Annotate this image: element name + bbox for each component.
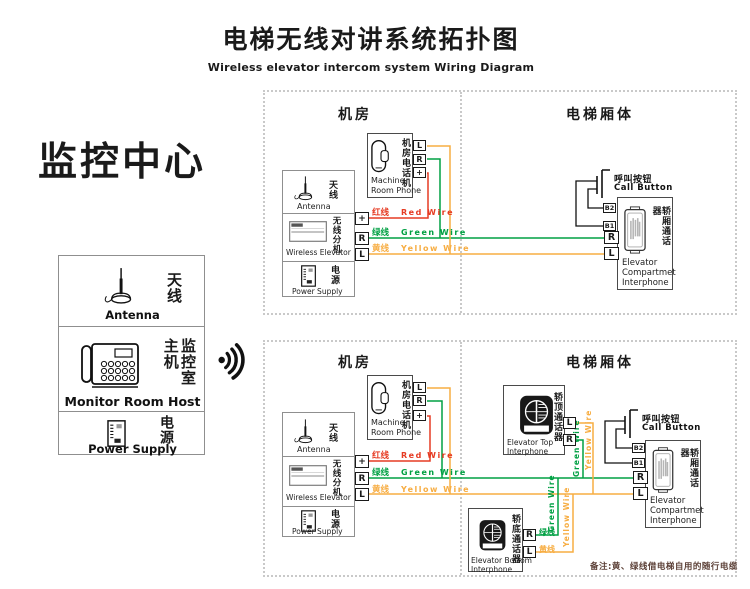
wire-label-green: 绿线Green Wire [372, 226, 467, 238]
divider-line [59, 411, 204, 412]
vertical-label-yellow-wire: Yellow Wire [584, 410, 593, 470]
terminal-l: L [355, 488, 369, 501]
wire-label-red: 红线Red Wire [372, 449, 454, 461]
speaker-icon [519, 395, 554, 437]
wiring-diagram-page: 电梯无线对讲系统拓扑图 Wireless elevator intercom s… [0, 0, 750, 589]
unit-label-en: Wireless Elevator [286, 249, 351, 258]
terminal-r: R [633, 471, 648, 484]
terminal-l: L [413, 140, 426, 151]
top-interphone-label-en: Interphone [507, 448, 548, 457]
machine-room-phone-box: 机房电话机 Machine Room Phone [367, 375, 413, 440]
call-button-label-en: Call Button [642, 423, 701, 433]
intercom-panel-icon [624, 205, 646, 255]
sound-waves-icon [216, 338, 254, 382]
power-supply-icon [301, 265, 316, 287]
wireless-unit-icon [289, 221, 327, 242]
machine-room-phone-label-en: Machine [371, 418, 405, 427]
call-button-symbol [625, 410, 638, 438]
wire-label-green-en: Green Wire [401, 228, 467, 237]
divider-line [59, 326, 204, 327]
wire-label-red-en: Red Wire [401, 208, 454, 217]
unit-power-label-en: Power Supply [292, 288, 343, 297]
terminal-r: R [413, 395, 426, 406]
wire-label-red-en: Red Wire [401, 451, 454, 460]
terminal-l: L [563, 417, 576, 429]
divider-line [283, 456, 354, 457]
monitor-center-box: 天线 Antenna 监控室主机 Monitor Room Host 电源 Po… [58, 255, 205, 455]
vertical-label-green-wire: Green Wire [547, 474, 556, 532]
elevator-top-interphone-box: 轿顶通话器 Elevator Top Interphone [503, 385, 565, 455]
unit-antenna-label-zh: 天线 [327, 180, 336, 202]
call-button-wire [576, 181, 603, 226]
terminal-r: R [413, 154, 426, 165]
wireless-unit-box: 天线 Antenna 无线分机 Wireless Elevator 电源 Pow… [282, 412, 355, 537]
terminal-plus: + [413, 410, 426, 421]
unit-antenna-label-en: Antenna [297, 202, 331, 211]
wire-label-red-zh: 红线 [372, 451, 389, 461]
top-interphone-label-zh: 轿顶通话器 [552, 392, 561, 442]
terminal-r: R [604, 231, 619, 244]
elevator-bottom-interphone-box: 轿底通话器 Elevator Bottom Interphone [468, 508, 523, 572]
bottom-interphone-label-en: Interphone [471, 566, 512, 575]
terminal-r: R [355, 232, 369, 245]
divider-line [283, 506, 354, 507]
unit-power-label-en: Power Supply [292, 528, 343, 537]
unit-antenna-label-en: Antenna [297, 445, 331, 454]
wall-phone-icon [371, 139, 391, 175]
call-button-wire [588, 189, 603, 208]
terminal-r: R [355, 472, 369, 485]
yellow-wire-short-label: 黄线 [539, 544, 555, 555]
speaker-icon [479, 517, 506, 555]
wire-label-yellow: 黄线Yellow Wire [372, 483, 470, 495]
vertical-label-yellow-wire: Yellow Wire [562, 487, 571, 547]
wire-label-red-zh: 红线 [372, 208, 389, 218]
wire-label-green-zh: 绿线 [372, 228, 389, 238]
wire-label-green-en: Green Wire [401, 468, 467, 477]
machine-room-phone-box: 机房电话机 Machine Room Phone [367, 133, 413, 198]
compartment-interphone-box: 轿厢通话器 Elevator Compartmet Interphone [617, 197, 673, 290]
unit-power-label-zh: 电源 [329, 265, 338, 287]
terminal-b1: B1 [603, 221, 616, 231]
green-wire-short-label: 绿线 [539, 527, 555, 538]
wire-label-yellow-en: Yellow Wire [401, 244, 470, 253]
terminal-b2: B2 [632, 443, 645, 453]
wall-phone-icon [371, 381, 391, 417]
call-button-wire [605, 421, 632, 463]
wire-label-yellow-zh: 黄线 [372, 244, 389, 254]
compartment-label-zh: 轿厢通话器 [678, 448, 697, 494]
machine-room-phone-label-en: Machine [371, 176, 405, 185]
desk-phone-icon [79, 340, 143, 390]
divider-line [283, 213, 354, 214]
terminal-r: R [563, 434, 576, 446]
wireless-unit-icon [289, 465, 327, 486]
call-button-label-en: Call Button [614, 183, 673, 193]
terminal-r: R [523, 529, 536, 541]
monitor-host-label-zh: 监控室主机 [162, 338, 197, 388]
terminal-l: L [523, 546, 536, 558]
divider-line [283, 261, 354, 262]
wireless-unit-box: 天线 Antenna 无线分机 Wireless Elevator 电源 Pow… [282, 170, 355, 297]
wire-label-green: 绿线Green Wire [372, 466, 467, 478]
terminal-plus: + [355, 455, 369, 468]
terminal-l: L [604, 247, 619, 260]
compartment-label-zh: 轿厢通话器 [650, 206, 669, 254]
antenna-icon [103, 266, 135, 314]
wire-label-yellow-en: Yellow Wire [401, 485, 470, 494]
terminal-l: L [413, 382, 426, 393]
wire-label-red: 红线Red Wire [372, 206, 454, 218]
monitor-antenna-label-zh: 天线 [165, 272, 182, 308]
compartment-label-en: Interphone [622, 279, 669, 289]
terminal-b2: B2 [603, 203, 616, 213]
footnote: 备注:黄、绿线借电梯自用的随行电缆 [590, 560, 738, 572]
compartment-interphone-box: 轿厢通话器 Elevator Compartmet Interphone [645, 440, 701, 528]
intercom-panel-icon [652, 447, 674, 493]
terminal-l: L [355, 248, 369, 261]
terminal-plus: + [413, 167, 426, 178]
monitor-power-label-en: Power Supply [59, 442, 206, 456]
wire-label-green-zh: 绿线 [372, 468, 389, 478]
wire-label-yellow: 黄线Yellow Wire [372, 242, 470, 254]
unit-antenna-label-zh: 天线 [327, 423, 336, 445]
monitor-host-label-en: Monitor Room Host [59, 394, 206, 409]
wire-label-yellow-zh: 黄线 [372, 485, 389, 495]
call-button-symbol [597, 170, 610, 198]
compartment-label-en: Interphone [650, 517, 697, 527]
terminal-l: L [633, 487, 648, 500]
terminal-plus: + [355, 212, 369, 225]
monitor-antenna-label-en: Antenna [59, 308, 206, 322]
terminal-b1: B1 [632, 458, 645, 468]
machine-room-phone-label-en: Room Phone [371, 428, 421, 437]
unit-label-en: Wireless Elevator [286, 494, 351, 503]
machine-room-phone-label-en: Room Phone [371, 186, 421, 195]
